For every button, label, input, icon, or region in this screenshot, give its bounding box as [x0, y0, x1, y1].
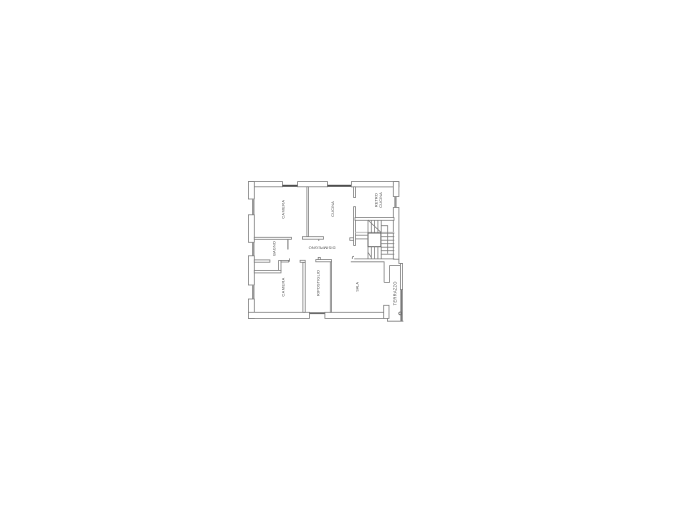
svg-text:RIPOSTIGLIO: RIPOSTIGLIO: [316, 270, 321, 296]
svg-text:DISIMPEGNO: DISIMPEGNO: [308, 245, 335, 250]
svg-text:TERRAZZO: TERRAZZO: [392, 281, 397, 305]
svg-text:CAMERA: CAMERA: [280, 277, 285, 296]
svg-text:CUCINA: CUCINA: [330, 201, 335, 217]
svg-text:BAGNO: BAGNO: [272, 241, 277, 256]
svg-text:CUCINA: CUCINA: [378, 192, 383, 208]
svg-text:SALA: SALA: [356, 282, 360, 292]
svg-text:CAMERA: CAMERA: [280, 200, 285, 219]
